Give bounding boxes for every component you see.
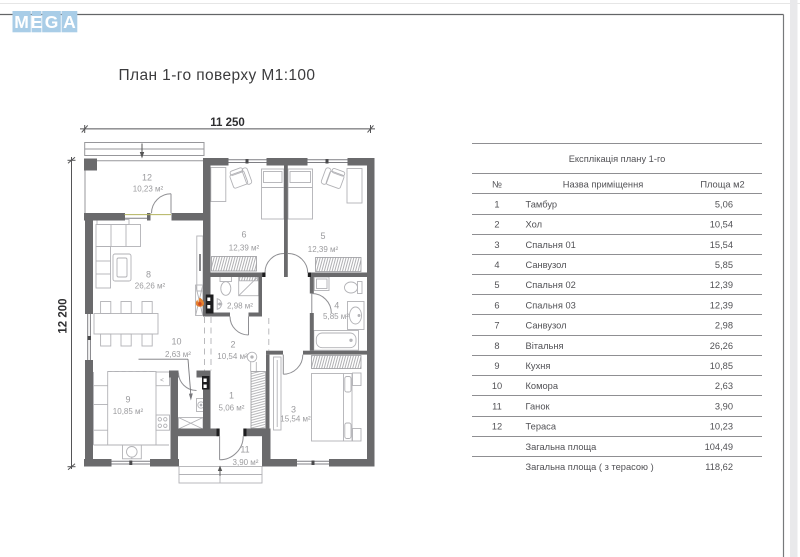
svg-text:Спальня 02: Спальня 02 [526, 280, 576, 290]
svg-text:104,49: 104,49 [705, 442, 733, 452]
svg-text:5,06: 5,06 [715, 199, 733, 209]
svg-text:4: 4 [494, 260, 499, 270]
svg-text:7: 7 [494, 321, 499, 331]
svg-text:11: 11 [492, 401, 502, 411]
svg-text:5: 5 [320, 231, 325, 241]
svg-text:12: 12 [492, 422, 502, 432]
svg-text:Кухня: Кухня [526, 361, 551, 371]
svg-text:10,23 м²: 10,23 м² [133, 185, 164, 194]
svg-text:11 250: 11 250 [210, 117, 245, 129]
svg-text:3: 3 [291, 405, 296, 415]
svg-text:12,39 м²: 12,39 м² [308, 245, 339, 254]
svg-text:10,85 м²: 10,85 м² [113, 407, 144, 416]
svg-text:1: 1 [494, 199, 499, 209]
svg-text:26,26 м²: 26,26 м² [135, 282, 166, 291]
svg-text:3,90: 3,90 [715, 401, 733, 411]
svg-text:<: < [160, 377, 164, 384]
svg-text:10: 10 [171, 337, 181, 347]
svg-text:1: 1 [229, 391, 234, 401]
svg-text:15,54: 15,54 [710, 240, 733, 250]
svg-text:12,39: 12,39 [710, 300, 733, 310]
svg-text:2,98 м²: 2,98 м² [227, 302, 253, 311]
svg-text:Площа м2: Площа м2 [700, 179, 744, 189]
svg-text:2: 2 [230, 340, 235, 350]
svg-text:A: A [63, 12, 76, 32]
svg-text:План 1-го поверху М1:100: План 1-го поверху М1:100 [119, 67, 316, 84]
svg-text:6: 6 [494, 300, 499, 310]
svg-text:G: G [45, 12, 59, 32]
svg-text:9: 9 [125, 395, 130, 405]
svg-text:Тамбур: Тамбур [526, 199, 558, 209]
svg-text:Санвузол: Санвузол [526, 321, 567, 331]
svg-text:10,54: 10,54 [710, 220, 733, 230]
svg-text:E: E [31, 12, 43, 32]
svg-text:10,54 м²: 10,54 м² [217, 352, 248, 361]
svg-text:8: 8 [494, 341, 499, 351]
svg-text:5,85 м²: 5,85 м² [323, 312, 349, 321]
svg-text:Ганок: Ганок [526, 401, 551, 411]
svg-text:5,06 м²: 5,06 м² [219, 404, 245, 413]
svg-text:Спальня 01: Спальня 01 [526, 240, 576, 250]
svg-text:11: 11 [240, 445, 249, 455]
svg-text:12,39 м²: 12,39 м² [229, 244, 260, 253]
svg-text:9: 9 [494, 361, 499, 371]
svg-text:4: 4 [334, 301, 339, 311]
svg-text:Вітальня: Вітальня [526, 341, 564, 351]
svg-text:12,39: 12,39 [710, 280, 733, 290]
svg-text:5: 5 [494, 280, 499, 290]
svg-text:Санвузол: Санвузол [526, 260, 567, 270]
svg-text:12 200: 12 200 [58, 298, 70, 333]
svg-text:3,90 м²: 3,90 м² [233, 458, 259, 467]
svg-text:10,23: 10,23 [710, 422, 733, 432]
svg-text:Загальна площа ( з терасою ): Загальна площа ( з терасою ) [526, 462, 654, 472]
svg-text:Експлікація плану 1-го: Експлікація плану 1-го [569, 154, 666, 164]
svg-text:6: 6 [241, 230, 246, 240]
svg-text:2,63 м²: 2,63 м² [165, 350, 191, 359]
svg-text:15,54 м²: 15,54 м² [280, 415, 311, 424]
svg-text:Хол: Хол [526, 220, 543, 230]
svg-text:M: M [14, 12, 29, 32]
svg-text:2,63: 2,63 [715, 381, 733, 391]
svg-text:10: 10 [492, 381, 502, 391]
svg-text:2: 2 [494, 220, 499, 230]
svg-text:8: 8 [146, 270, 151, 280]
svg-text:Комора: Комора [526, 381, 559, 391]
svg-text:118,62: 118,62 [705, 462, 733, 472]
svg-text:Спальня 03: Спальня 03 [526, 300, 576, 310]
svg-text:5,85: 5,85 [715, 260, 733, 270]
svg-text:10,85: 10,85 [710, 361, 733, 371]
svg-text:3: 3 [494, 240, 499, 250]
svg-text:12: 12 [142, 173, 152, 183]
svg-text:Загальна площа: Загальна площа [526, 442, 598, 452]
svg-text:2,98: 2,98 [715, 321, 733, 331]
svg-text:Тераса: Тераса [526, 422, 557, 432]
svg-text:№: № [492, 179, 502, 189]
svg-text:26,26: 26,26 [710, 341, 733, 351]
svg-text:Назва приміщення: Назва приміщення [563, 179, 644, 189]
